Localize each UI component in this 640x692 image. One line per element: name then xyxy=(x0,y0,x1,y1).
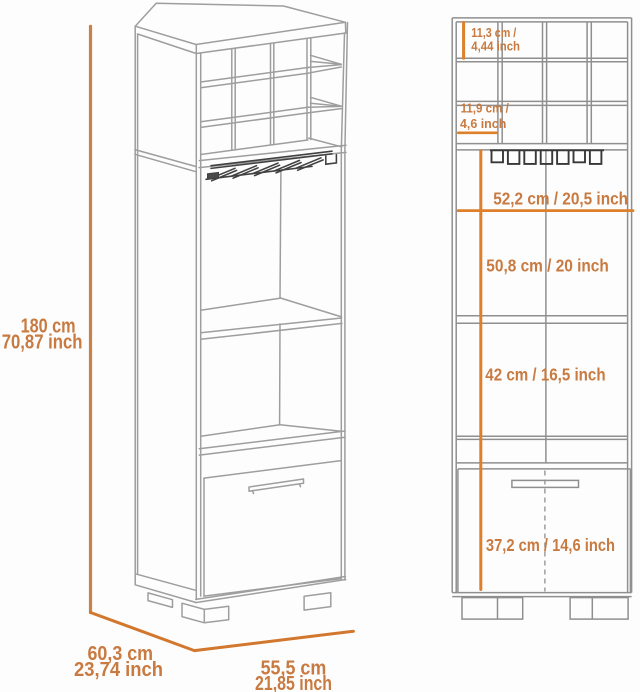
svg-text:52,2 cm / 20,5 inch: 52,2 cm / 20,5 inch xyxy=(493,188,628,208)
svg-text:4,6 inch: 4,6 inch xyxy=(460,116,506,131)
svg-text:70,87 inch: 70,87 inch xyxy=(2,332,83,354)
svg-text:4,44 inch: 4,44 inch xyxy=(471,39,520,54)
svg-text:11,9 cm /: 11,9 cm / xyxy=(461,101,510,116)
svg-text:42 cm / 16,5 inch: 42 cm / 16,5 inch xyxy=(485,364,605,384)
svg-text:37,2 cm / 14,6 inch: 37,2 cm / 14,6 inch xyxy=(486,535,615,555)
svg-text:21,85 inch: 21,85 inch xyxy=(255,673,332,692)
svg-text:23,74 inch: 23,74 inch xyxy=(74,659,163,681)
svg-text:50,8 cm / 20 inch: 50,8 cm / 20 inch xyxy=(486,255,609,275)
